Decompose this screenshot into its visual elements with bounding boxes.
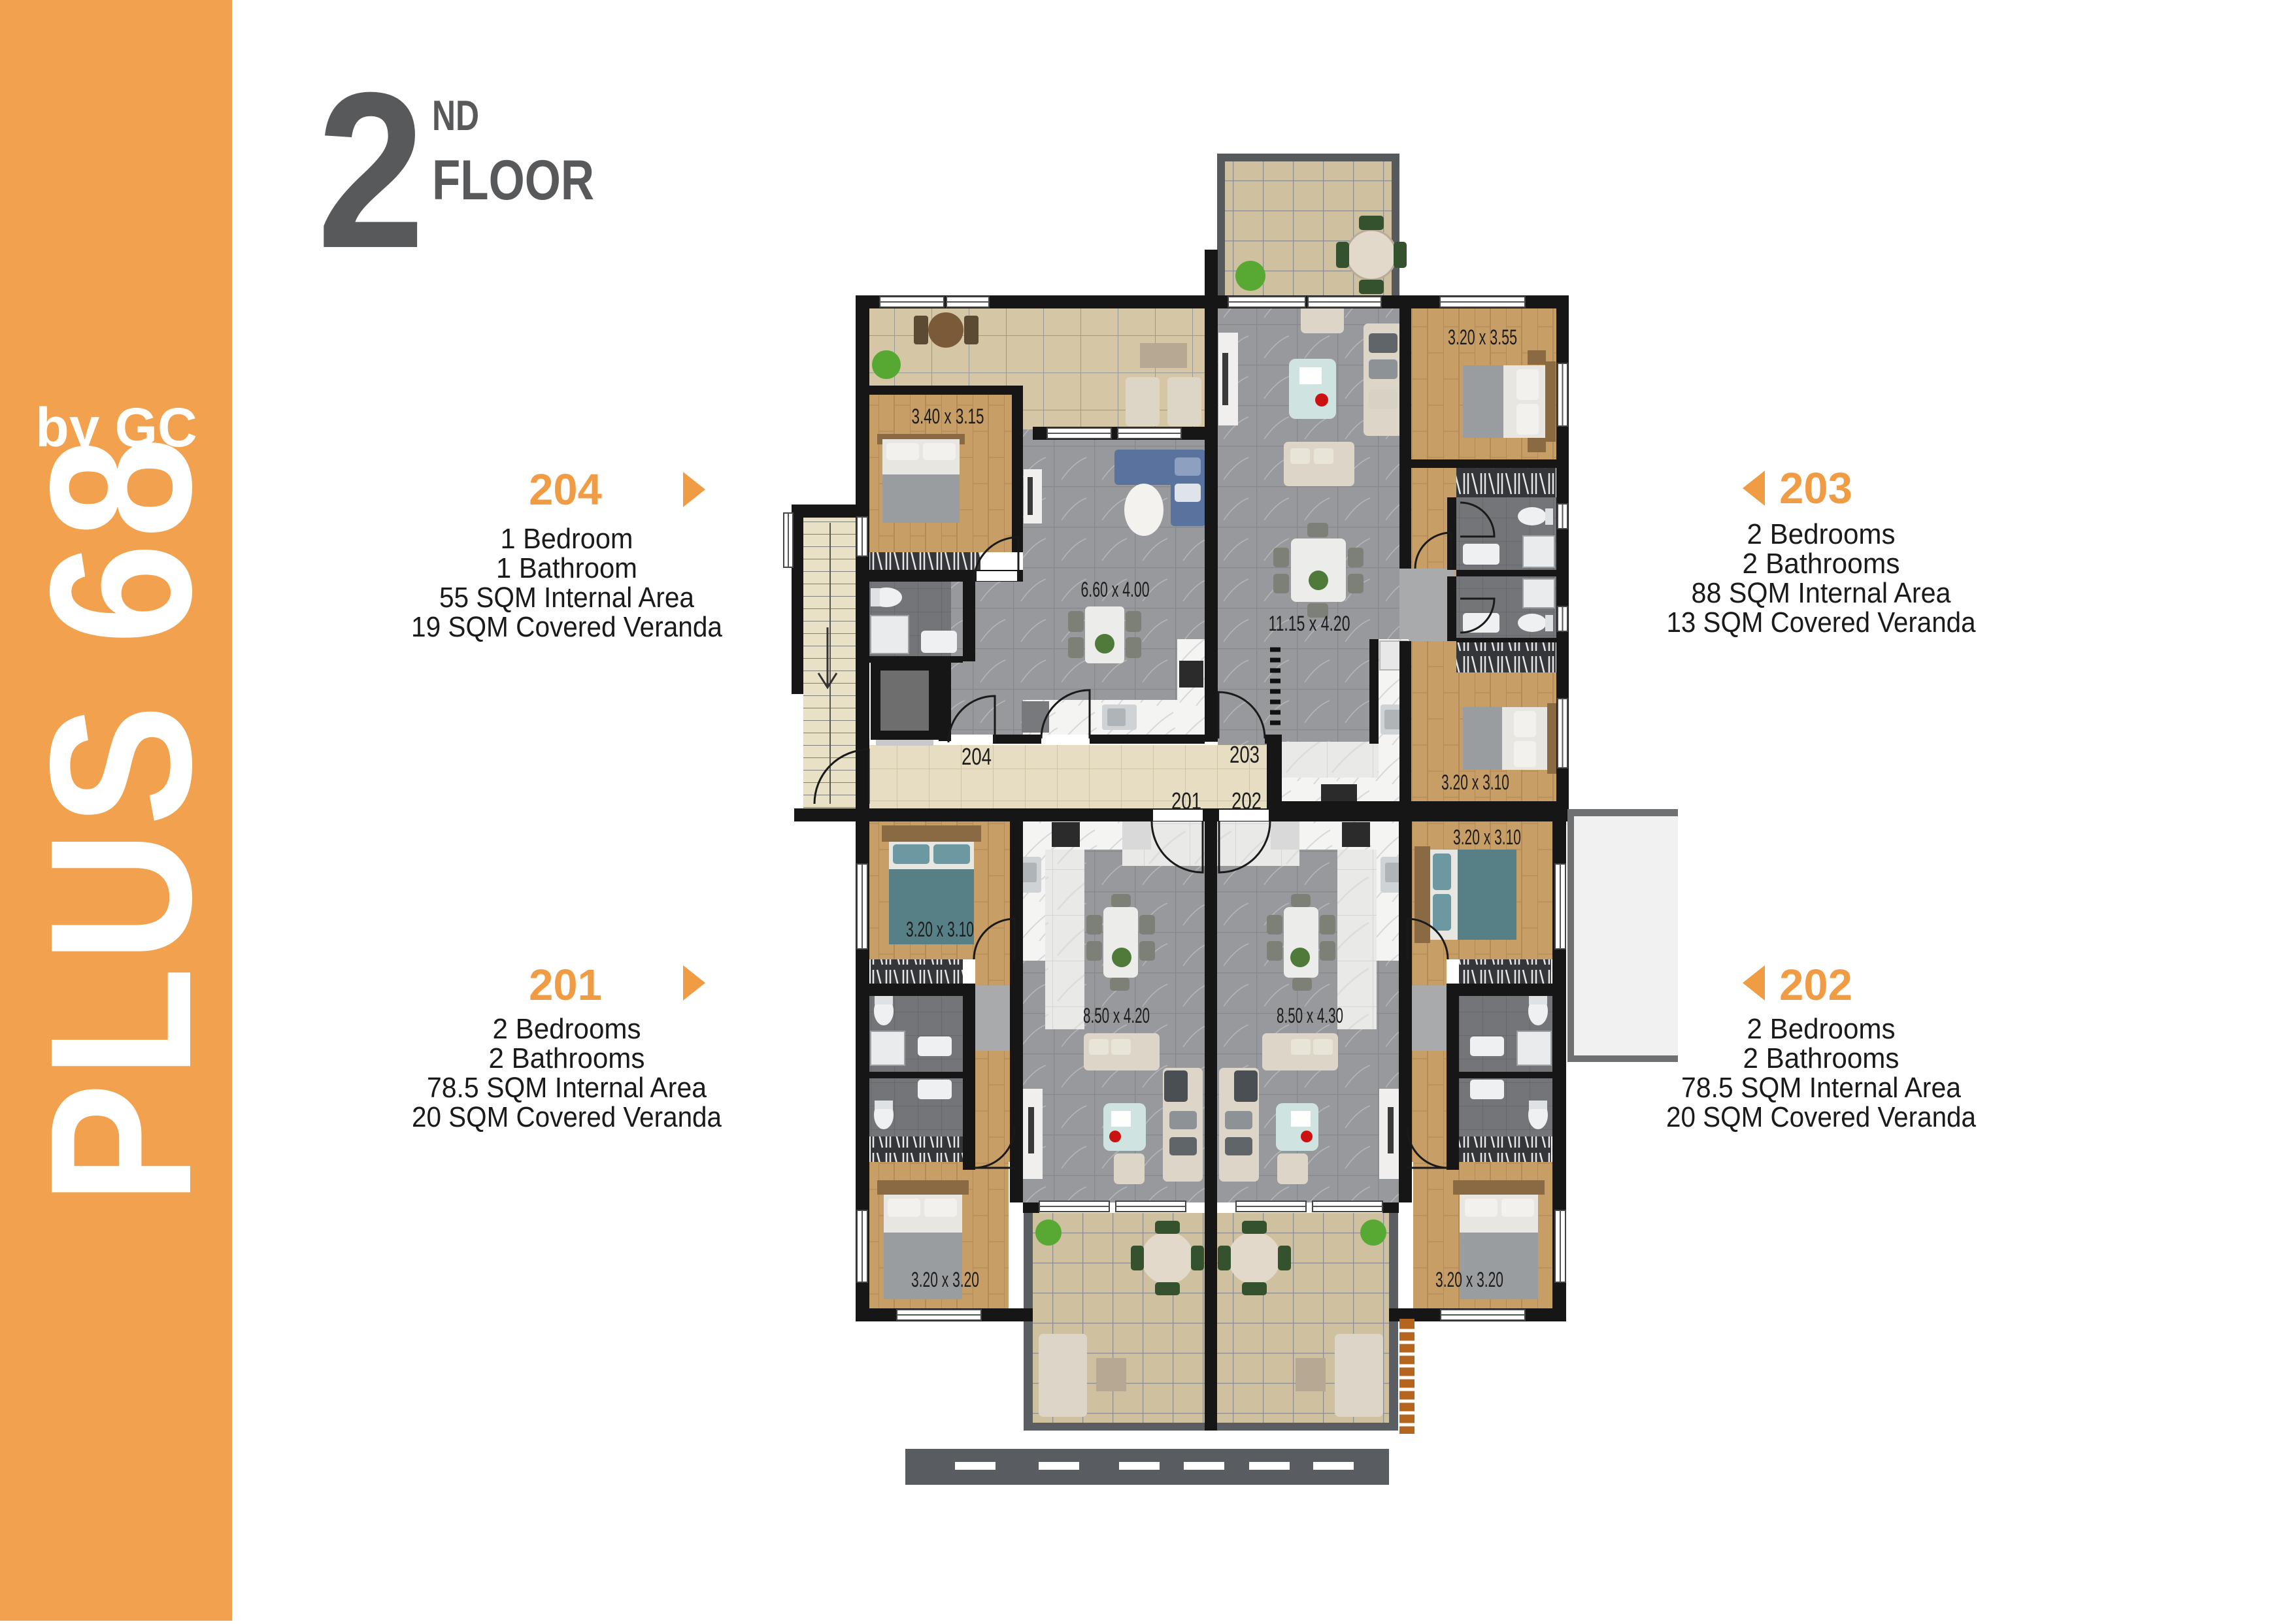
svg-text:20 SQM Covered Veranda: 20 SQM Covered Veranda [1666,1101,1976,1133]
svg-text:ND: ND [432,91,479,139]
svg-text:202: 202 [1231,787,1262,814]
svg-text:3.20 x 3.20: 3.20 x 3.20 [911,1268,979,1291]
svg-text:20 SQM Covered Veranda: 20 SQM Covered Veranda [412,1101,722,1133]
svg-text:3.20 x 3.55: 3.20 x 3.55 [1448,325,1517,349]
svg-text:55 SQM Internal Area: 55 SQM Internal Area [439,582,694,614]
svg-text:2 Bathrooms: 2 Bathrooms [1743,1042,1900,1074]
svg-text:203: 203 [1230,741,1260,768]
svg-text:2 Bedrooms: 2 Bedrooms [1747,518,1896,550]
svg-text:8.50 x 4.20: 8.50 x 4.20 [1083,1004,1150,1027]
svg-text:PLUS 68: PLUS 68 [8,432,233,1204]
svg-text:201: 201 [1171,787,1201,814]
svg-text:11.15 x 4.20: 11.15 x 4.20 [1269,612,1350,635]
svg-text:78.5 SQM Internal Area: 78.5 SQM Internal Area [1681,1072,1961,1104]
svg-text:2 Bathrooms: 2 Bathrooms [1743,548,1900,580]
svg-text:1 Bathroom: 1 Bathroom [496,552,637,584]
svg-text:2 Bedrooms: 2 Bedrooms [493,1013,641,1045]
svg-text:2 Bathrooms: 2 Bathrooms [489,1042,645,1074]
svg-text:19 SQM Covered Veranda: 19 SQM Covered Veranda [411,611,722,643]
svg-text:203: 203 [1779,464,1852,513]
svg-text:FLOOR: FLOOR [432,149,594,212]
svg-text:1 Bedroom: 1 Bedroom [501,523,633,555]
svg-text:2: 2 [317,46,425,295]
svg-text:202: 202 [1779,961,1852,1010]
svg-text:204: 204 [529,465,602,514]
svg-text:78.5 SQM Internal Area: 78.5 SQM Internal Area [427,1072,707,1104]
svg-text:3.20 x 3.10: 3.20 x 3.10 [906,918,974,941]
svg-text:2 Bedrooms: 2 Bedrooms [1747,1013,1896,1045]
svg-text:6.60 x 4.00: 6.60 x 4.00 [1081,578,1150,601]
svg-text:8.50 x 4.30: 8.50 x 4.30 [1277,1004,1343,1027]
svg-text:3.20 x 3.10: 3.20 x 3.10 [1441,771,1509,794]
svg-text:3.40 x 3.15: 3.40 x 3.15 [912,405,984,428]
svg-text:204: 204 [962,743,992,770]
svg-text:3.20 x 3.20: 3.20 x 3.20 [1435,1268,1503,1291]
svg-text:88 SQM Internal Area: 88 SQM Internal Area [1692,577,1951,609]
svg-text:3.20 x 3.10: 3.20 x 3.10 [1453,825,1521,849]
svg-text:13 SQM Covered Veranda: 13 SQM Covered Veranda [1667,606,1976,638]
svg-text:201: 201 [529,961,602,1010]
